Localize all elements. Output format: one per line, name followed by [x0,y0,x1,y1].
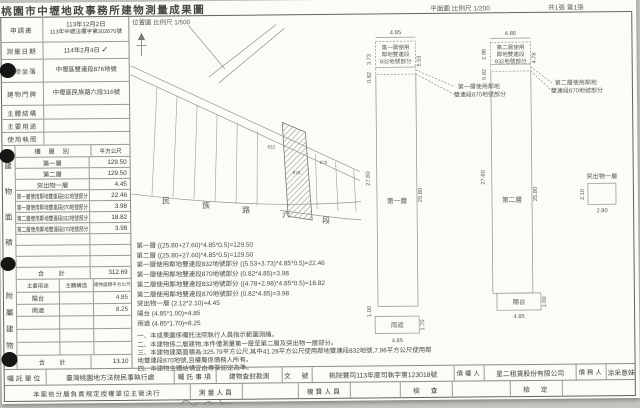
handwritten-mark [178,396,238,408]
commission-unit-label: 囑託單位 [4,370,46,385]
svg-text:雙連段870地號部分: 雙連段870地號部分 [454,90,506,98]
dim-a-top: 4.85 [390,30,402,36]
binder-hole [1,257,16,271]
svg-text:雙連段870地號部分: 雙連段870地號部分 [551,86,603,94]
svg-text:路: 路 [242,205,250,215]
svg-text:鄰地雙連段: 鄰地雙連段 [382,50,410,58]
annex-structure [59,304,93,315]
application-number: 113年中壢法囑字第302670號 [50,29,122,37]
floor-area: 18.82 [90,212,130,222]
doc-number-label: 文 號 [282,367,312,382]
info-row-structure: 主體結構 [1,105,129,120]
application-value: 113年12月2日 113年中壢法囑字第302670號 [43,16,128,42]
sheet-count-label: 共1張 第1張 [548,1,584,11]
license-label: 使用執照 [1,133,44,145]
area-side-label: 建物面積 [3,162,15,264]
dim-a-canopy-width: 4.85 [392,338,403,344]
parcel-number: 832 [267,144,275,149]
scanned-document: 桃園市中壢地政事務所建物測量成果圖 平面圖 比例尺 1/200 共1張 第1張 … [0,0,640,408]
svg-text:六: 六 [282,209,290,219]
structure-label: 主體結構 [1,106,44,119]
reviewer-signature [350,382,400,398]
dim-b-strip-right: 25.80 [533,187,539,202]
debtor-label: 債務人 [576,364,606,379]
commission-matter-value: 建物查封勘測 [216,367,282,383]
annex-structure [59,292,93,303]
plan-c-label: 突出物一層 [586,172,617,180]
survey-date-text: 114年2月4日 ✓ [64,45,108,55]
check-label: 檢 查 [400,382,452,398]
dim-a-canopy-depth: 1.70 [420,320,426,331]
verify-label: 檢 定 [510,381,562,397]
site-map: 832 876 870 民 族 路 六 段 [128,24,362,240]
floor-area: 129.50 [90,157,130,167]
check-mark: ✓ [101,45,108,54]
floor-area: 4.45 [90,179,130,189]
info-row-use: 主要用途 [1,119,129,133]
floor-header: 樓 層 別 [15,145,91,157]
parcel-number: 876 [293,170,301,175]
check-signature [452,381,510,398]
dim-a-right-upper: 5.53 [417,56,423,67]
survey-date-value: 114年2月4日 ✓ [43,42,128,59]
parcel-boundaries [151,86,356,214]
svg-text:族: 族 [202,200,210,210]
address-label: 建物門牌 [1,83,44,105]
floor-name: 第一層使用鄰地雙連段870地號部分 [16,201,90,212]
unit-header: 平方公尺 [92,145,130,156]
svg-text:第二層使用: 第二層使用 [497,43,525,51]
plan-a-canopy-label: 雨遮 [391,320,404,329]
annex-header-structure: 主體構造 [59,279,93,291]
svg-text:第二層使用鄰地: 第二層使用鄰地 [555,78,597,86]
annex-row: 雨遮 8.25 [17,304,131,317]
structure-value [44,105,129,119]
annex-side-label: 附屬建物 [4,291,16,357]
annex-total-value: 13.10 [92,355,132,368]
dim-b-left-lower: 0.82 [482,69,488,80]
dim-b-strip-left: 27.60 [481,170,487,185]
application-label: 申請書 [0,17,43,42]
plan-b-balcony-label: 陽台 [513,297,526,306]
svg-text:民: 民 [162,196,170,205]
plan-b-box-label: 第二層使用 鄰地雙連段 832地號部分 [495,43,527,65]
dim-b-right-upper: 4.78 [532,52,538,63]
verify-signature [562,380,636,397]
annex-header-area: 建物面積平方公尺 [93,279,131,291]
license-value [44,132,129,145]
annex-row: 陽台 4.85 [17,292,131,305]
info-row-address: 建物門牌 中壢區民族路六段316號 [1,82,129,106]
north-arrow-icon [136,34,146,56]
debtor-value: 涂采意妹 [606,364,636,379]
dim-c-left: 2.10 [580,189,586,200]
commission-unit-value: 臺灣桃園地方法院民事執行處 [46,368,174,384]
dim-a-step: 1.00 [367,306,373,317]
info-row-location: 建物坐落 中壢區雙連段876地號 [1,59,129,83]
doc-number-value: 桃院豐司113年度司執字第123018號 [312,366,454,382]
floor-name: 第二層使用鄰地雙連段832地號部分 [16,212,90,223]
annex-row-empty [17,329,131,343]
floor-name: 第二層 [16,168,90,179]
dim-a-left-upper: 3.73 [367,54,373,65]
annex-header-use: 主要用途 [17,280,59,292]
reviewer-label: 複算人員 [298,383,350,399]
area-header-row: 樓 層 別 平方公尺 [15,145,129,158]
use-label: 主要用途 [1,120,44,132]
use-value [44,119,129,132]
paper-sheet: 桃園市中壢地政事務所建物測量成果圖 平面圖 比例尺 1/200 共1張 第1張 … [0,0,640,404]
survey-date-label: 測量日期 [0,43,43,59]
plan-a-box-label: 第一層使用 鄰地雙連段 832地號部分 [380,43,412,65]
annex-use: 陽台 [17,293,59,304]
annex-row-empty [17,316,131,330]
info-row-application: 申請書 113年12月2日 113年中壢法囑字第302670號 [0,16,128,43]
dim-a-strip-right: 25.80 [418,188,424,203]
annex-header-row: 主要用途 主體構造 建物面積平方公尺 [17,279,131,293]
plan-a-callout: 第一層使用鄰地 雙連段870地號部分 [454,82,506,98]
annex-total-label: 合 計 [17,355,91,369]
floor-plan-diagrams: 4.85 第一層使用 鄰地雙連段 832地號部分 3.73 0.82 5.53 … [358,11,635,366]
plan-b-strip-label: 第二層 [502,195,523,204]
info-row-license: 使用執照 [1,132,129,146]
floor-area: 3.98 [90,201,130,211]
plan-scale-label: 平面圖 比例尺 1/200 [430,2,490,13]
area-total-value: 312.69 [91,267,131,278]
area-total-row: 合 計 312.69 [17,267,131,280]
dim-b-balcony-depth: 1.00 [542,296,548,307]
location-value: 中壢區雙連段876地號 [44,59,129,82]
dim-b-balcony-width: 4.85 [513,314,524,320]
annex-area: 4.85 [93,292,131,303]
dim-a-strip-left: 27.60 [366,171,372,186]
info-row-survey-date: 測量日期 114年2月4日 ✓ [0,42,128,60]
road-lines [128,24,361,222]
plan-b-callout: 第二層使用鄰地 雙連段870地號部分 [551,78,603,94]
creditor-value: 星二租賃股份有限公司 [484,365,576,381]
svg-text:第一層使用: 第一層使用 [382,43,410,51]
floor-name: 第一層使用鄰地雙連段832地號部分 [16,190,90,201]
floor-name: 突出物一層 [16,179,90,190]
dim-a-left-lower: 0.82 [367,72,373,83]
area-total-label: 合 計 [17,267,91,279]
delegation-note: 本案依分層負責規定授權單位主管決行 [4,384,190,402]
floor-area: 3.98 [91,223,131,233]
surveyor-signature [242,383,298,400]
svg-text:段: 段 [322,215,330,225]
floor-area: 22.46 [90,190,130,200]
dim-b-top: 4.85 [505,31,517,37]
floor-name: 第一層 [16,157,90,168]
annex-row-empty [17,342,131,356]
dim-b-left-upper: 2.98 [482,49,488,60]
floor-area: 129.50 [90,168,130,178]
dim-c-bottom: 2.80 [596,208,607,214]
binder-hole [1,352,17,367]
annex-use: 雨遮 [17,305,59,316]
creditor-label: 債權人 [454,365,484,380]
svg-text:鄰地雙連段: 鄰地雙連段 [497,50,525,58]
address-value: 中壢區民族路六段316號 [44,82,129,105]
commission-matter-label: 囑託事項 [174,368,216,383]
annex-area: 8.25 [93,304,131,315]
plan-a-strip-label: 第一層 [387,196,408,205]
svg-text:第一層使用鄰地: 第一層使用鄰地 [458,82,500,90]
annex-total-row: 合 計 13.10 [17,355,131,369]
floor-name: 第二層使用鄰地雙連段870地號部分 [16,223,90,234]
parcel-number: 870 [320,160,328,165]
